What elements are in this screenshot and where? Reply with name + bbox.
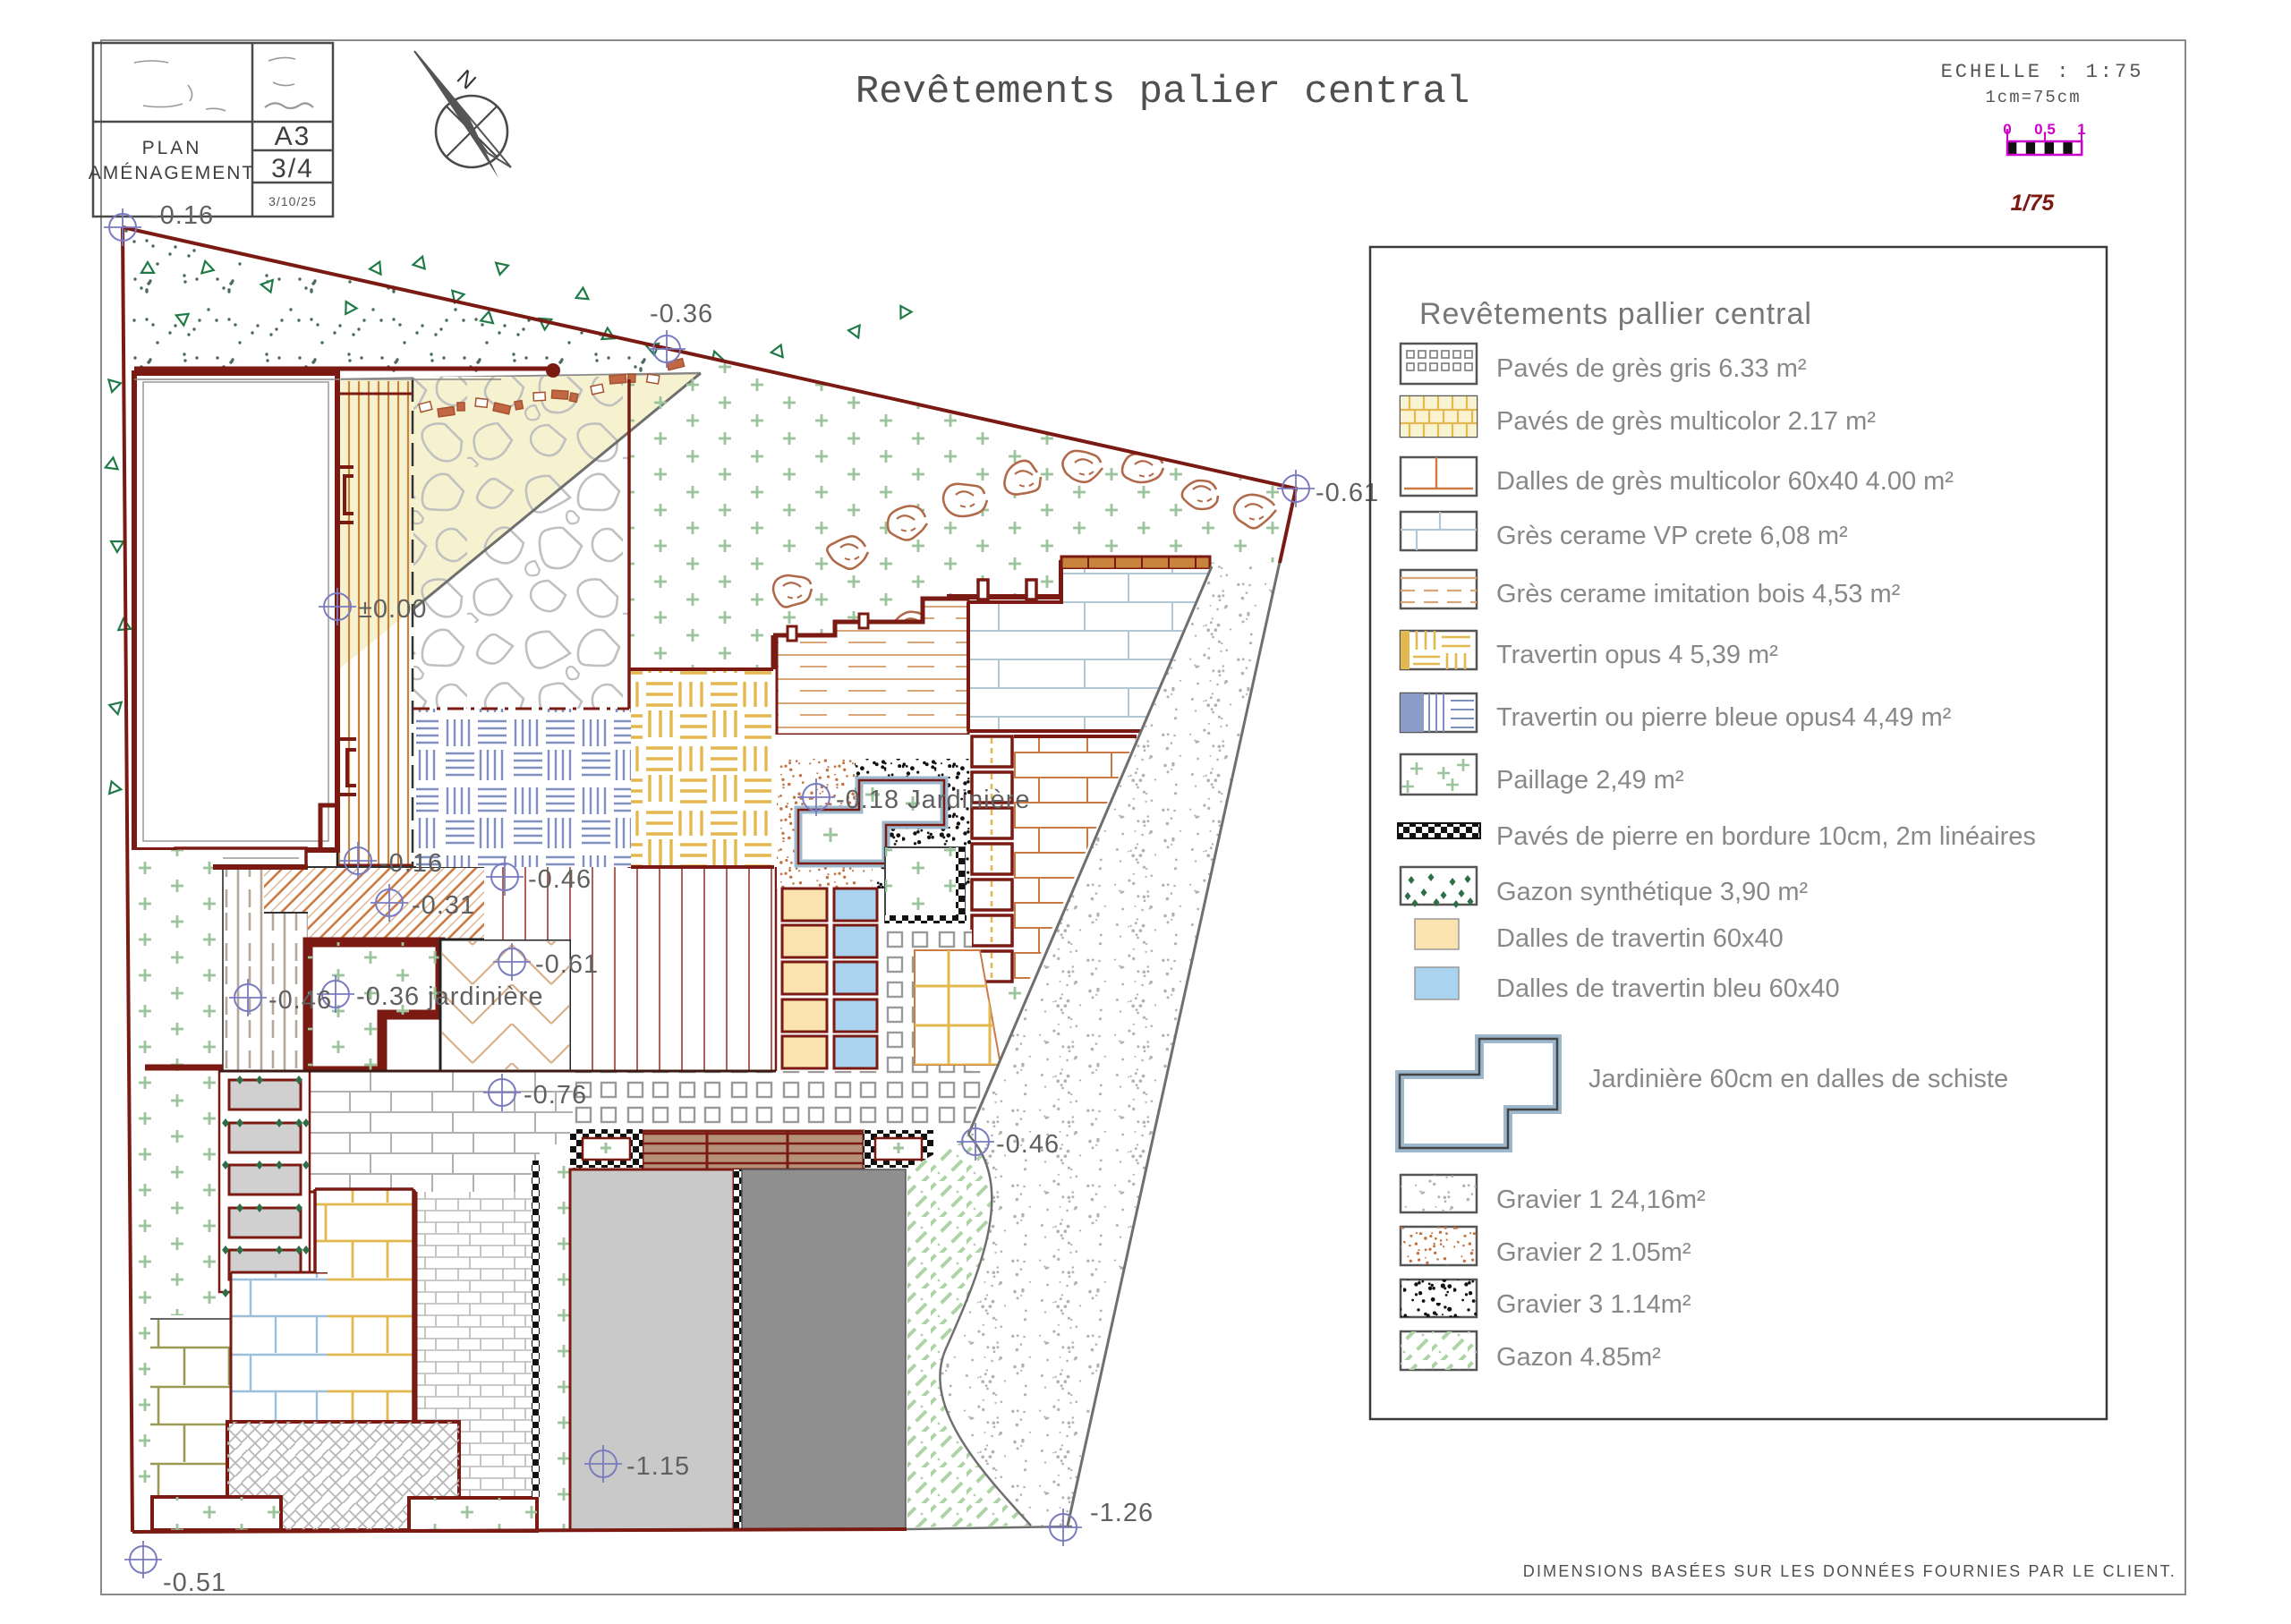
- svg-text:Revêtements palier central: Revêtements palier central: [856, 70, 1470, 115]
- svg-text:-0.36 jardinière: -0.36 jardinière: [356, 982, 543, 1011]
- svg-text:-0.31: -0.31: [412, 891, 475, 920]
- svg-text:-0.76: -0.76: [524, 1081, 587, 1110]
- svg-text:Dalles de travertin bleu 60x40: Dalles de travertin bleu 60x40: [1496, 974, 1840, 1003]
- svg-text:-0.18 Jardinière: -0.18 Jardinière: [836, 786, 1031, 814]
- svg-text:-0.46: -0.46: [268, 986, 332, 1015]
- svg-text:Grès cerame VP crete 6,08 m²: Grès cerame VP crete 6,08 m²: [1496, 522, 1848, 550]
- svg-text:-1.15: -1.15: [626, 1452, 690, 1481]
- svg-text:AMÉNAGEMENT: AMÉNAGEMENT: [89, 163, 256, 183]
- svg-text:Gazon synthétique 3,90 m²: Gazon synthétique 3,90 m²: [1496, 878, 1809, 906]
- svg-text:Dalles de grès multicolor 60x4: Dalles de grès multicolor 60x40 4.00 m²: [1496, 467, 1954, 496]
- svg-text:Jardinière 60cm en dalles de s: Jardinière 60cm en dalles de schiste: [1588, 1065, 2008, 1093]
- svg-text:Gravier 2 1.05m²: Gravier 2 1.05m²: [1496, 1238, 1691, 1267]
- svg-text:-0.16: -0.16: [379, 849, 443, 878]
- svg-text:A3: A3: [275, 122, 311, 151]
- svg-text:Travertin ou pierre bleue opus: Travertin ou pierre bleue opus4 4,49 m²: [1496, 703, 1952, 732]
- svg-text:-0.61: -0.61: [535, 950, 599, 979]
- svg-text:Travertin opus 4 5,39 m²: Travertin opus 4 5,39 m²: [1496, 641, 1778, 669]
- svg-text:Paillage 2,49 m²: Paillage 2,49 m²: [1496, 766, 1684, 795]
- svg-text:Gazon 4.85m²: Gazon 4.85m²: [1496, 1343, 1661, 1372]
- svg-text:Pavés de pierre en bordure 10c: Pavés de pierre en bordure 10cm, 2m liné…: [1496, 822, 2036, 851]
- svg-text:3/4: 3/4: [271, 154, 314, 183]
- svg-text:Dalles de travertin 60x40: Dalles de travertin 60x40: [1496, 924, 1784, 953]
- svg-text:Grès cerame imitation bois 4,5: Grès cerame imitation bois 4,53 m²: [1496, 580, 1901, 608]
- svg-text:-0.46: -0.46: [528, 865, 592, 894]
- svg-text:Gravier 3 1.14m²: Gravier 3 1.14m²: [1496, 1290, 1691, 1319]
- svg-text:DIMENSIONS BASÉES SUR LES DON: DIMENSIONS BASÉES SUR LES DONNÉES FOURNI…: [1523, 1562, 2176, 1580]
- svg-text:Revêtements pallier central: Revêtements pallier central: [1419, 297, 1812, 331]
- svg-text:-0.46: -0.46: [996, 1130, 1060, 1159]
- svg-text:-0.51: -0.51: [163, 1569, 226, 1597]
- svg-text:±0.00: ±0.00: [358, 595, 427, 624]
- svg-text:Pavés de grès gris 6.33 m²: Pavés de grès gris 6.33 m²: [1496, 354, 1807, 383]
- svg-text:ECHELLE : 1:75: ECHELLE : 1:75: [1941, 61, 2144, 83]
- svg-text:1/75: 1/75: [2011, 191, 2056, 216]
- svg-text:-1.26: -1.26: [1090, 1499, 1154, 1527]
- svg-text:Pavés de grès multicolor 2.17: Pavés de grès multicolor 2.17 m²: [1496, 407, 1876, 436]
- svg-text:Gravier 1 24,16m²: Gravier 1 24,16m²: [1496, 1186, 1706, 1214]
- svg-text:3/10/25: 3/10/25: [268, 194, 317, 208]
- svg-text:-0.16: -0.16: [150, 201, 214, 230]
- svg-text:-0.36: -0.36: [650, 300, 713, 328]
- svg-text:1cm=75cm: 1cm=75cm: [1985, 88, 2081, 107]
- svg-text:PLAN: PLAN: [142, 138, 202, 158]
